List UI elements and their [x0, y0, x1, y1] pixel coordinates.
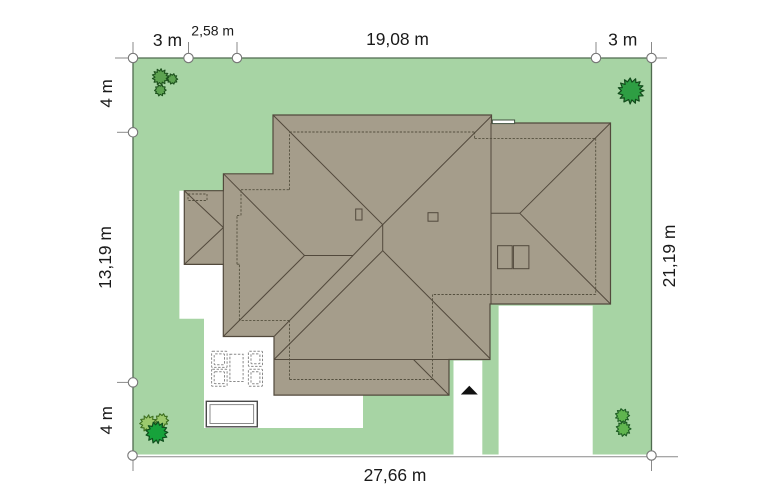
svg-text:27,66 m: 27,66 m: [364, 465, 427, 485]
svg-text:2,58 m: 2,58 m: [191, 23, 234, 39]
svg-text:13,19 m: 13,19 m: [95, 226, 115, 289]
svg-text:21,19 m: 21,19 m: [659, 225, 679, 288]
svg-text:19,08 m: 19,08 m: [366, 29, 429, 49]
svg-text:3 m: 3 m: [608, 30, 637, 50]
svg-text:3 m: 3 m: [153, 30, 182, 50]
svg-text:4 m: 4 m: [97, 406, 116, 434]
svg-text:4 m: 4 m: [97, 79, 116, 107]
